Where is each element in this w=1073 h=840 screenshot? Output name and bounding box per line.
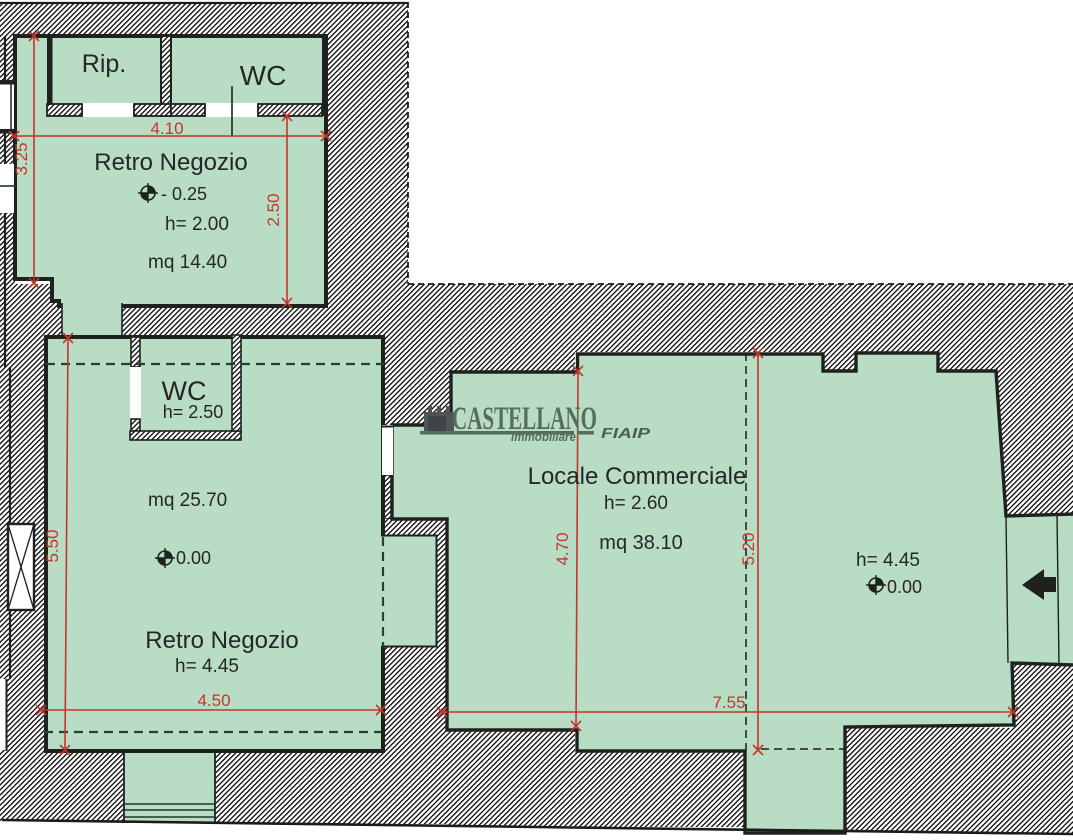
svg-text:immobiliare: immobiliare xyxy=(511,430,576,444)
svg-text:Retro Negozio: Retro Negozio xyxy=(145,627,298,654)
svg-text:- 0.25: - 0.25 xyxy=(161,184,207,204)
svg-text:4.70: 4.70 xyxy=(553,532,572,565)
svg-text:4.10: 4.10 xyxy=(150,119,183,138)
svg-text:mq 25.70: mq 25.70 xyxy=(148,490,227,511)
svg-text:0.00: 0.00 xyxy=(887,577,922,597)
svg-text:Rip.: Rip. xyxy=(82,50,126,78)
svg-text:h= 2.60: h= 2.60 xyxy=(604,493,668,514)
svg-text:3.25: 3.25 xyxy=(12,142,31,175)
svg-text:2.50: 2.50 xyxy=(264,193,283,226)
svg-text:FIAIP: FIAIP xyxy=(601,426,650,442)
svg-text:7.55: 7.55 xyxy=(712,693,745,712)
svg-text:Locale Commerciale: Locale Commerciale xyxy=(528,463,747,490)
svg-text:h= 2.00: h= 2.00 xyxy=(165,214,229,235)
svg-text:0.00: 0.00 xyxy=(176,548,211,568)
svg-text:h= 2.50: h= 2.50 xyxy=(163,402,224,422)
svg-text:WC: WC xyxy=(240,60,287,91)
svg-text:5.50: 5.50 xyxy=(43,529,62,562)
svg-text:5.20: 5.20 xyxy=(739,532,758,565)
svg-text:h= 4.45: h= 4.45 xyxy=(856,550,920,571)
svg-text:mq 14.40: mq 14.40 xyxy=(148,252,227,273)
svg-text:h= 4.45: h= 4.45 xyxy=(175,656,239,677)
svg-text:mq 38.10: mq 38.10 xyxy=(599,532,682,554)
svg-text:Retro Negozio: Retro Negozio xyxy=(94,149,247,176)
svg-text:4.50: 4.50 xyxy=(197,691,230,710)
